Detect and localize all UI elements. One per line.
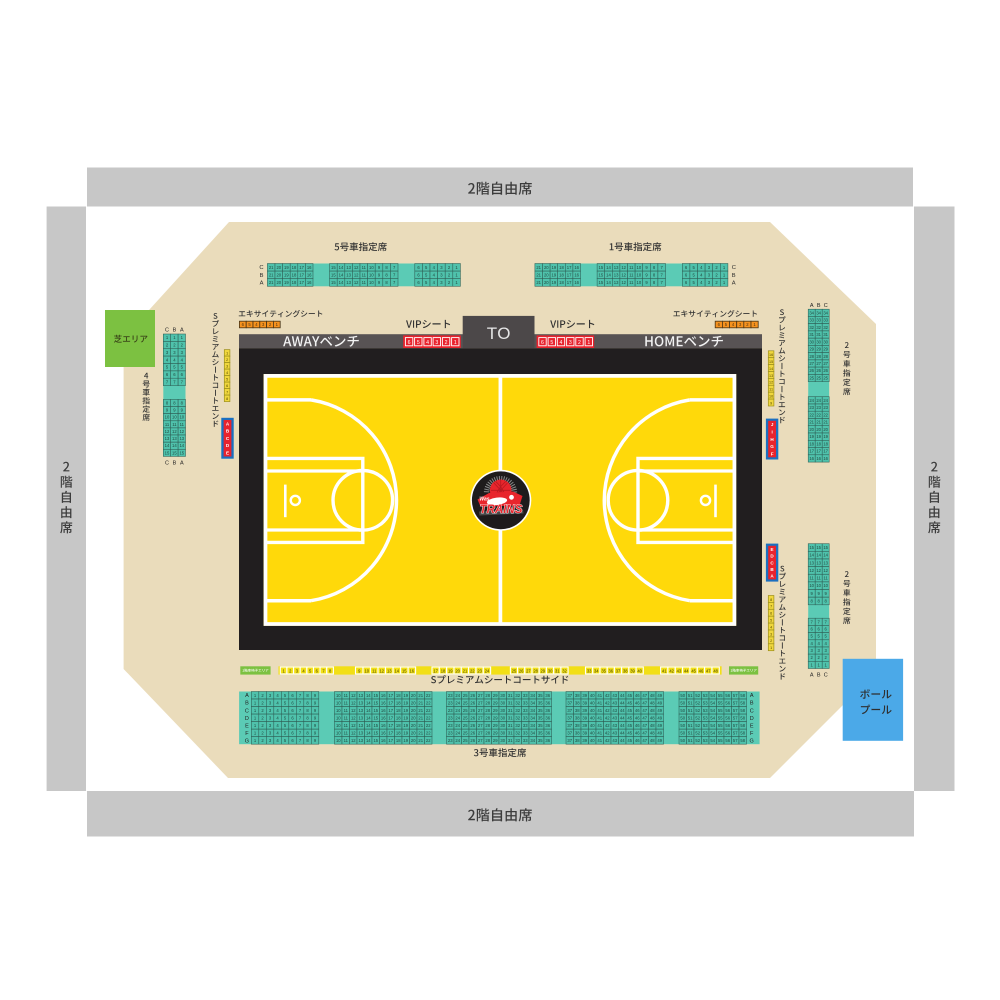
svg-text:15: 15 (769, 360, 773, 364)
svg-text:23: 23 (477, 668, 482, 673)
svg-text:18: 18 (441, 668, 446, 673)
svg-text:12: 12 (380, 668, 385, 673)
svg-text:A: A (260, 280, 264, 286)
svg-text:E: E (771, 547, 774, 552)
svg-text:42: 42 (669, 668, 674, 673)
svg-text:A: A (180, 461, 184, 467)
svg-text:10: 10 (365, 668, 370, 673)
svg-text:17: 17 (433, 668, 438, 673)
svg-text:A: A (810, 673, 814, 679)
svg-text:I: I (771, 429, 772, 434)
svg-text:10: 10 (769, 395, 773, 399)
svg-text:B: B (173, 461, 177, 467)
svg-text:13: 13 (387, 668, 392, 673)
svg-text:16: 16 (410, 668, 415, 673)
svg-text:A: A (750, 693, 754, 699)
svg-text:G: G (245, 738, 249, 744)
svg-text:44: 44 (684, 668, 689, 673)
svg-text:D: D (750, 716, 754, 722)
svg-text:46: 46 (699, 668, 704, 673)
svg-text:48: 48 (713, 668, 718, 673)
svg-text:12: 12 (769, 381, 773, 385)
svg-text:31: 31 (555, 668, 560, 673)
svg-text:C: C (732, 265, 736, 271)
svg-text:C: C (165, 328, 169, 334)
svg-text:27: 27 (526, 668, 531, 673)
svg-text:6: 6 (408, 340, 411, 346)
svg-text:J: J (771, 422, 774, 427)
svg-text:5: 5 (226, 378, 228, 382)
svg-text:5: 5 (550, 340, 553, 346)
svg-text:C: C (824, 303, 828, 309)
svg-text:G: G (750, 738, 754, 744)
svg-text:C: C (750, 708, 754, 714)
svg-text:6: 6 (541, 340, 544, 346)
svg-text:19: 19 (448, 668, 453, 673)
svg-text:2: 2 (578, 340, 581, 346)
svg-text:9: 9 (770, 401, 772, 405)
svg-text:C: C (245, 708, 249, 714)
svg-text:24: 24 (485, 668, 490, 673)
svg-text:14: 14 (769, 367, 773, 371)
svg-text:F: F (771, 451, 774, 456)
svg-text:G: G (770, 444, 774, 449)
svg-text:A: A (810, 303, 814, 309)
svg-text:2: 2 (770, 639, 772, 643)
svg-text:45: 45 (691, 668, 696, 673)
svg-text:41: 41 (662, 668, 667, 673)
svg-text:16: 16 (769, 353, 773, 357)
svg-text:32: 32 (562, 668, 567, 673)
svg-text:37: 37 (616, 668, 621, 673)
svg-text:B: B (817, 673, 821, 679)
svg-text:47: 47 (706, 668, 711, 673)
svg-text:7: 7 (226, 391, 228, 395)
svg-text:D: D (245, 716, 249, 722)
svg-text:3: 3 (435, 340, 438, 346)
svg-text:34: 34 (594, 668, 599, 673)
svg-text:38: 38 (623, 668, 628, 673)
svg-text:B: B (245, 701, 249, 707)
svg-text:B: B (173, 328, 177, 334)
svg-text:TO: TO (487, 324, 511, 343)
svg-text:A: A (180, 328, 184, 334)
svg-text:4: 4 (560, 340, 563, 346)
svg-text:TRAINS: TRAINS (480, 504, 523, 516)
svg-text:3: 3 (770, 632, 772, 636)
svg-text:40: 40 (637, 668, 642, 673)
svg-text:30: 30 (548, 668, 553, 673)
svg-text:8: 8 (226, 397, 228, 401)
svg-text:35: 35 (601, 668, 606, 673)
svg-text:26: 26 (519, 668, 524, 673)
svg-text:C: C (165, 461, 169, 467)
svg-text:22: 22 (470, 668, 475, 673)
svg-text:36: 36 (609, 668, 614, 673)
svg-text:11: 11 (372, 668, 377, 673)
svg-text:21: 21 (463, 668, 468, 673)
svg-text:8: 8 (770, 598, 772, 602)
svg-text:C: C (259, 265, 263, 271)
svg-text:B: B (260, 273, 264, 279)
svg-text:13: 13 (769, 374, 773, 378)
svg-text:B: B (817, 303, 821, 309)
svg-text:B: B (750, 701, 754, 707)
svg-text:1: 1 (770, 646, 772, 650)
svg-text:25: 25 (512, 668, 517, 673)
svg-text:A: A (245, 693, 249, 699)
svg-text:B: B (732, 273, 736, 279)
svg-text:39: 39 (630, 668, 635, 673)
svg-text:Was: Was (479, 497, 489, 503)
svg-text:6: 6 (226, 384, 228, 388)
svg-text:29: 29 (541, 668, 546, 673)
svg-text:28: 28 (533, 668, 538, 673)
svg-text:4: 4 (226, 371, 228, 375)
svg-text:4: 4 (770, 625, 772, 629)
svg-text:1: 1 (587, 340, 590, 346)
svg-text:6: 6 (770, 612, 772, 616)
svg-text:C: C (824, 673, 828, 679)
svg-text:4: 4 (426, 340, 429, 346)
svg-text:14: 14 (395, 668, 400, 673)
svg-text:3: 3 (226, 365, 228, 369)
svg-text:1: 1 (454, 340, 457, 346)
svg-text:5: 5 (417, 340, 420, 346)
svg-text:33: 33 (587, 668, 592, 673)
svg-text:E: E (245, 723, 249, 729)
svg-text:1: 1 (226, 352, 228, 356)
svg-text:2: 2 (226, 358, 228, 362)
svg-text:2: 2 (445, 340, 448, 346)
svg-text:7: 7 (770, 605, 772, 609)
svg-text:43: 43 (677, 668, 682, 673)
svg-text:20: 20 (455, 668, 460, 673)
svg-text:15: 15 (402, 668, 407, 673)
svg-text:A: A (732, 280, 736, 286)
svg-text:3: 3 (569, 340, 572, 346)
svg-text:11: 11 (769, 388, 773, 392)
svg-text:E: E (750, 723, 754, 729)
svg-text:E: E (226, 451, 229, 456)
svg-text:5: 5 (770, 619, 772, 623)
